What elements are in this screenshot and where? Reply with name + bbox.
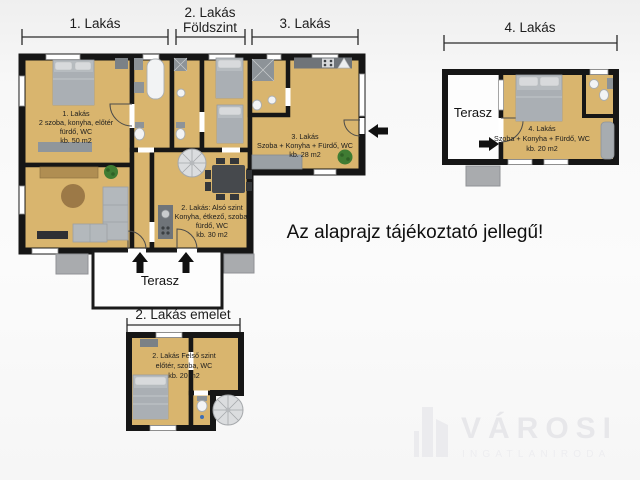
unit3-label: 3. Lakás xyxy=(291,132,319,141)
sink xyxy=(134,58,143,70)
toilet xyxy=(253,100,262,110)
svg-text:Konyha, étkező, szoba,: Konyha, étkező, szoba, xyxy=(175,212,250,221)
entry-step-left xyxy=(56,254,88,274)
small-sink xyxy=(200,415,204,419)
tv-stand xyxy=(37,231,68,239)
sink xyxy=(177,89,185,97)
svg-text:fürdő, WC: fürdő, WC xyxy=(60,127,92,136)
svg-text:kb. 30 m2: kb. 30 m2 xyxy=(196,230,228,239)
building-logo-icon xyxy=(414,407,448,457)
floorplan-page: 1. Lakás 2. Lakás Földszint 3. Lakás 4. … xyxy=(0,0,640,480)
svg-text:2 szoba, konyha, előtér: 2 szoba, konyha, előtér xyxy=(39,118,114,127)
svg-text:kb. 20 m2: kb. 20 m2 xyxy=(526,144,558,153)
spiral-staircase xyxy=(213,395,243,425)
shower-tray xyxy=(601,122,614,159)
unit2-lower-label: 2. Lakás: Alsó szint xyxy=(181,203,243,212)
logo-brand: VÁROSI xyxy=(461,411,618,445)
toilet xyxy=(600,90,609,101)
toilet xyxy=(197,401,207,412)
toilet xyxy=(176,129,185,140)
dimension-label-unit4: 4. Lakás xyxy=(504,20,555,35)
svg-text:kb. 50 m2: kb. 50 m2 xyxy=(60,136,92,145)
dresser xyxy=(140,339,158,347)
dresser xyxy=(115,58,128,69)
kitchen-counter xyxy=(294,58,352,69)
svg-text:kb. 20 m2: kb. 20 m2 xyxy=(168,371,200,380)
unit1-hallway xyxy=(132,150,152,251)
unit1-label: 1. Lakás xyxy=(62,109,90,118)
dimension-label-unit2-line2: Földszint xyxy=(183,20,237,35)
svg-text:Szoba + Konyha + Fürdő, WC: Szoba + Konyha + Fürdő, WC xyxy=(257,141,353,150)
entry-step-right xyxy=(224,254,254,273)
kitchen-counter xyxy=(158,205,173,239)
logo-subtitle: INGATLANIRODA xyxy=(462,449,611,460)
unit4-label: 4. Lakás xyxy=(528,124,556,133)
sink xyxy=(268,96,276,104)
svg-text:Szoba + Konyha + Fürdő, WC: Szoba + Konyha + Fürdő, WC xyxy=(494,134,590,143)
svg-text:kb. 28 m2: kb. 28 m2 xyxy=(289,150,321,159)
main-building-floorplan: 1. Lakás 2 szoba, konyha, előtér fürdő, … xyxy=(20,55,389,309)
sideboard xyxy=(40,167,98,178)
dimension-label-unit1: 1. Lakás xyxy=(69,16,120,31)
spiral-staircase xyxy=(178,149,206,177)
toilet xyxy=(135,128,145,140)
logo: VÁROSI INGATLANIRODA xyxy=(414,407,618,460)
dimension-label-unit2-line1: 2. Lakás xyxy=(184,5,235,20)
main-terrace-label: Terasz xyxy=(141,273,179,288)
unit2-upper-label: 2. Lakás Felső szint xyxy=(152,351,216,360)
unit4-terrace-label: Terasz xyxy=(454,105,492,120)
round-rug xyxy=(61,184,85,208)
entrance-arrow-left-icon xyxy=(368,124,388,138)
unit4-floorplan: Terasz 4. Lakás Szoba + Konyha + Fürdő, … xyxy=(445,70,616,187)
potted-plant xyxy=(338,150,353,165)
unit2-upper-floorplan: 2. Lakás Felső szint előtér, szoba, WC k… xyxy=(129,333,243,431)
potted-plant xyxy=(104,165,118,179)
bathtub xyxy=(147,59,164,99)
dimension-label-unit3: 3. Lakás xyxy=(279,16,330,31)
washer xyxy=(134,82,144,93)
svg-text:előtér, szoba, WC: előtér, szoba, WC xyxy=(156,361,213,370)
floorplan-drawing: 1. Lakás 2. Lakás Földszint 3. Lakás 4. … xyxy=(0,0,640,480)
svg-text:fürdő, WC: fürdő, WC xyxy=(196,221,228,230)
disclaimer-text: Az alaprajz tájékoztató jellegű! xyxy=(287,222,544,243)
sink xyxy=(590,80,599,89)
unit4-entry-step xyxy=(466,166,500,186)
